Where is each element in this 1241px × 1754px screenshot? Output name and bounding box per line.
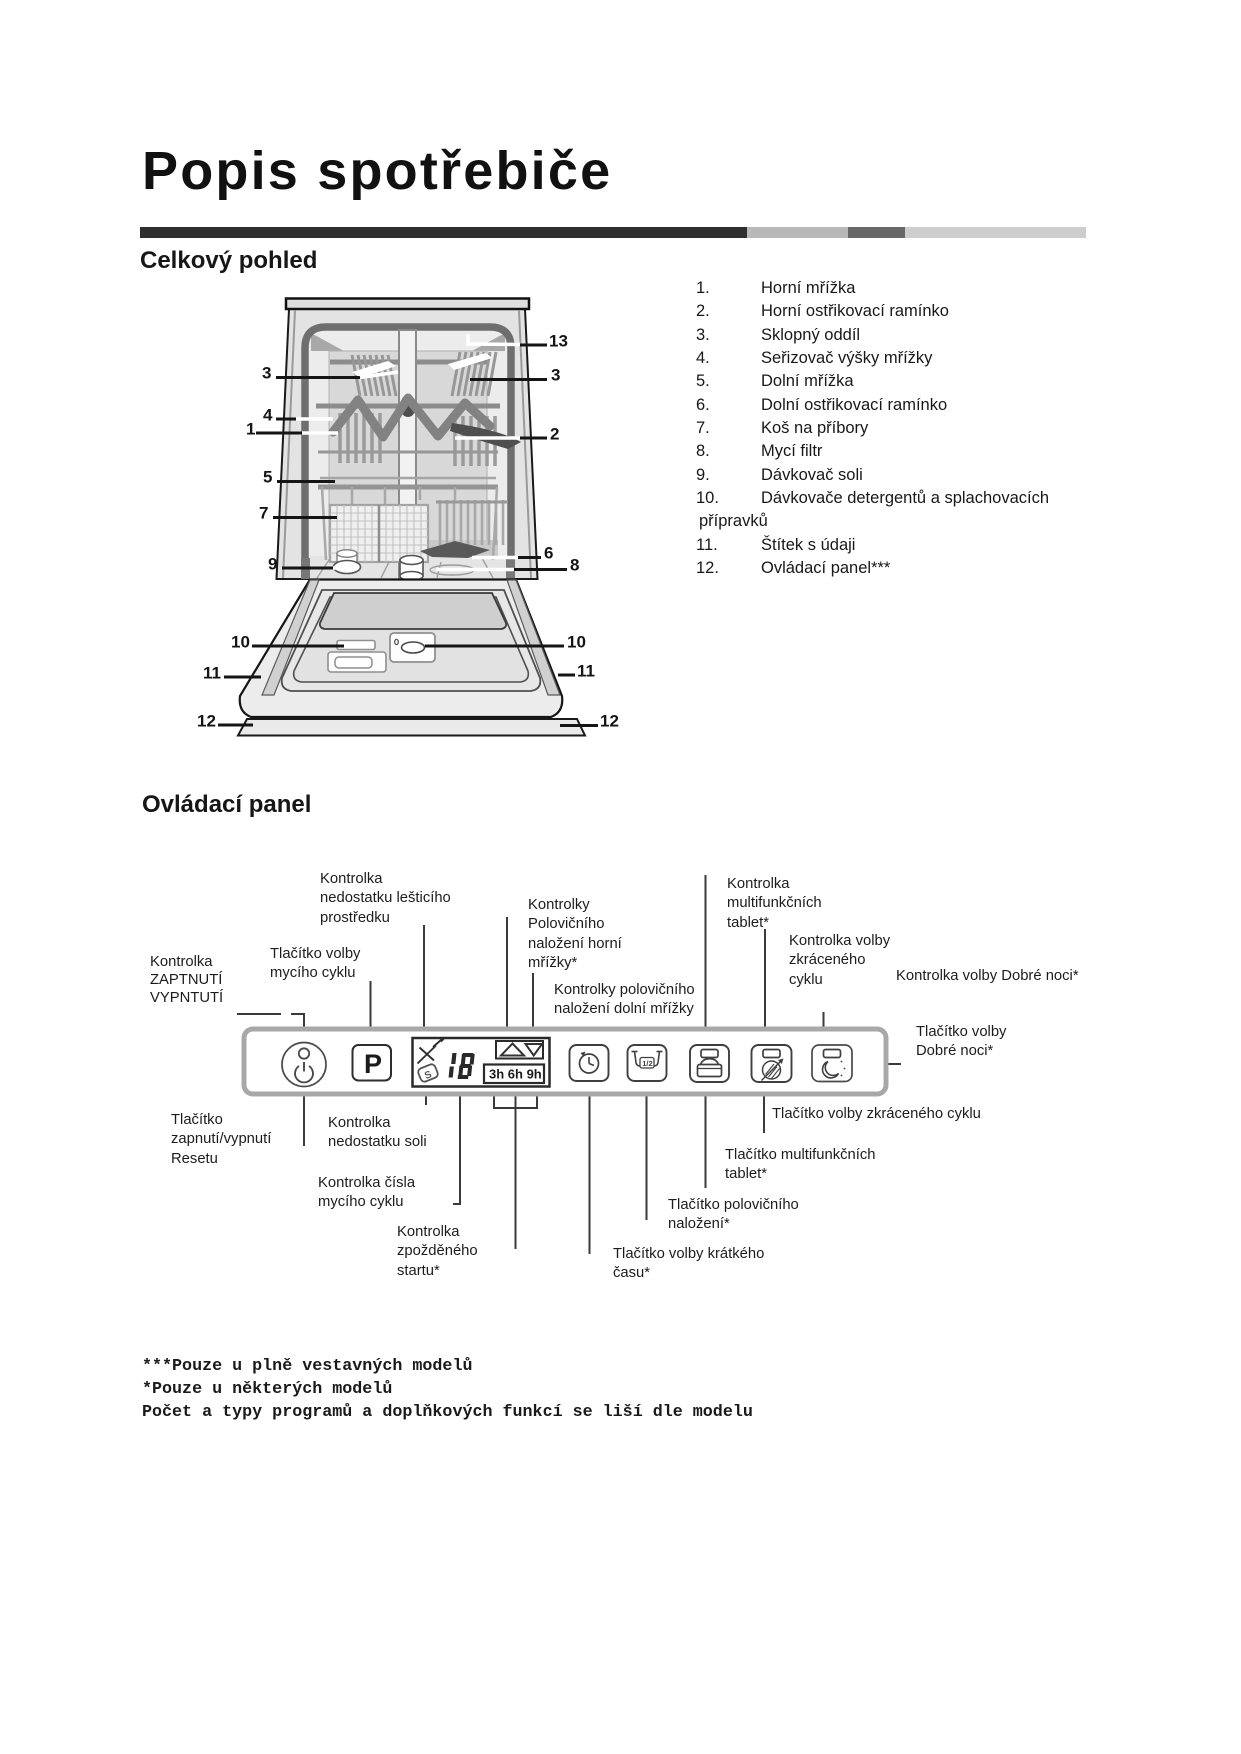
svg-text:12: 12 bbox=[600, 712, 619, 731]
svg-text:3h 6h 9h: 3h 6h 9h bbox=[489, 1067, 542, 1082]
svg-text:11: 11 bbox=[203, 664, 221, 683]
svg-text:13: 13 bbox=[549, 332, 568, 351]
svg-text:2: 2 bbox=[550, 425, 559, 444]
svg-text:1: 1 bbox=[246, 420, 255, 439]
svg-text:11: 11 bbox=[577, 662, 595, 681]
svg-text:7: 7 bbox=[259, 504, 268, 523]
svg-text:1/2: 1/2 bbox=[642, 1059, 652, 1068]
svg-text:9: 9 bbox=[268, 555, 277, 574]
svg-text:12: 12 bbox=[197, 712, 216, 731]
svg-text:6: 6 bbox=[544, 544, 553, 563]
svg-text:5: 5 bbox=[263, 468, 272, 487]
svg-text:P: P bbox=[364, 1049, 382, 1079]
svg-text:10: 10 bbox=[567, 633, 586, 652]
svg-text:3: 3 bbox=[262, 364, 271, 383]
svg-text:3: 3 bbox=[551, 366, 560, 385]
svg-text:4: 4 bbox=[263, 406, 273, 425]
svg-text:10: 10 bbox=[231, 633, 250, 652]
svg-text:8: 8 bbox=[570, 556, 579, 575]
